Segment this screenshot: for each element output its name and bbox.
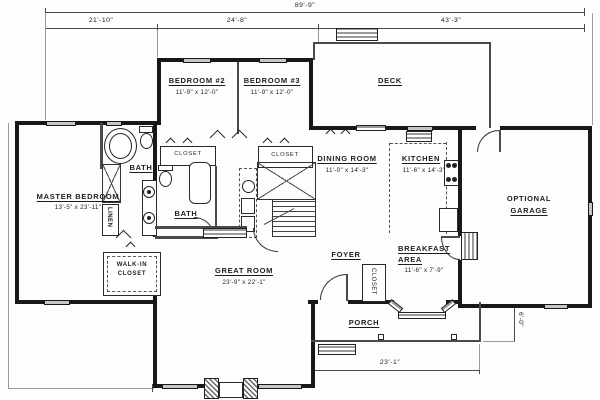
bathtub-inner-line [109, 133, 132, 159]
deck-steps [336, 28, 378, 41]
dim-tick [584, 24, 585, 32]
wall-master-bath [100, 123, 103, 169]
bay-window-center [398, 312, 446, 319]
window [106, 121, 122, 126]
door-swing-bedroom2 [210, 130, 226, 146]
master-bath-label: BATH [129, 163, 152, 172]
window [259, 58, 287, 63]
porch-label: PORCH [349, 318, 380, 327]
door-leaf [499, 130, 501, 152]
wall-bedrooms-left [157, 58, 161, 125]
wall-bedrooms-right [309, 58, 313, 130]
kitchen-size: 11'-6" x 14'-3" [403, 167, 446, 174]
walk-in-closet-label2: CLOSET [118, 271, 147, 277]
french-door-deck [326, 129, 336, 139]
extension-line [157, 30, 158, 57]
counter-edge [389, 143, 390, 233]
extension-line-left [8, 123, 9, 388]
refrigerator-fixture [439, 208, 458, 232]
dim-line-porch-depth [514, 306, 515, 342]
extension-line [479, 344, 480, 370]
foyer-closet-label: CLOSET [370, 268, 376, 295]
wall-master-bottom [15, 300, 157, 304]
burner [452, 163, 457, 168]
floor-plan-canvas: 89'-9" 21'-10" 24'-8" 43'-3" 23'-1" 6'-0… [0, 0, 600, 400]
garage-label: GARAGE [510, 206, 547, 215]
wall-master-left [15, 121, 19, 304]
bedroom3-label: BEDROOM #3 [244, 76, 301, 85]
stairs-treads [272, 199, 316, 237]
wall-bedrooms-top [157, 58, 313, 62]
porch-edge [311, 340, 481, 342]
extension-line [592, 13, 593, 125]
dim-overall-label: 89'-9" [295, 2, 315, 9]
extension-line [483, 341, 515, 342]
toilet-bowl-fixture [159, 171, 172, 187]
door-arc-front-entry [320, 274, 347, 300]
burner [452, 177, 457, 182]
bedroom2-label: BEDROOM #2 [169, 76, 226, 85]
dining-room-size: 11'-0" x 14'-3" [326, 167, 369, 174]
wall-bedroom-divider [237, 62, 239, 134]
toilet-bowl-fixture [242, 180, 255, 193]
wall-master-top [15, 121, 157, 125]
kitchen-label: KITCHEN [402, 154, 440, 163]
entry-column [243, 378, 258, 399]
master-bedroom-label: MASTER BEDROOM [37, 192, 120, 201]
garage-steps [461, 232, 478, 260]
door-arc-hall [253, 228, 278, 252]
foyer-label: FOYER [331, 250, 360, 259]
sink-drain [147, 190, 151, 194]
dim-tick [584, 8, 585, 16]
burner [446, 177, 451, 182]
fireplace-hearth [203, 228, 247, 238]
porch-post [451, 334, 457, 340]
deck-edge-top [313, 42, 490, 44]
toilet-bowl-fixture [140, 133, 153, 149]
laundry-unit [241, 198, 255, 214]
bay-window-left [388, 299, 404, 313]
deck-label: DECK [378, 76, 402, 85]
toilet-tank-fixture [139, 126, 153, 133]
wall-garage-left-upper [458, 126, 462, 236]
extension-line-bottom-left [8, 388, 154, 389]
dim-line-overall [45, 12, 585, 13]
closet-bedroom3-label: CLOSET [271, 152, 298, 158]
closet-bedroom2-label: CLOSET [174, 151, 201, 157]
stairs-upper-xbox [257, 162, 316, 200]
master-bedroom-size: 13'-5" x 23'-11" [55, 204, 102, 211]
window [46, 121, 76, 126]
door-swing-bedroom3 [232, 130, 248, 146]
sliding-door-deck [356, 125, 386, 131]
window-garage [544, 304, 568, 309]
wall-garage-top-b [500, 126, 592, 130]
wall-greatroom-right [311, 300, 315, 388]
deck-edge-right [489, 42, 491, 128]
dim-left-label: 21'-10" [89, 17, 114, 24]
dim-middle-label: 24'-8" [227, 17, 247, 24]
bedroom2-size: 11'-9" x 12'-0" [176, 89, 219, 96]
dim-line-left-mid [45, 28, 318, 29]
door-leaf [346, 274, 348, 301]
dim-porch-depth-label: 6'-0" [517, 312, 524, 327]
garage-label-optional: OPTIONAL [507, 194, 551, 203]
extension-line [318, 30, 319, 42]
breakfast-size: 11'-6" x 7'-9" [405, 267, 444, 274]
french-door-deck [341, 129, 351, 139]
window-greatroom [258, 384, 302, 389]
great-room-size: 23'-9" x 22'-1" [222, 279, 265, 286]
entry-column [204, 378, 219, 399]
dim-right-label: 43'-3" [441, 17, 461, 24]
extension-line [45, 13, 46, 120]
window [44, 300, 70, 305]
dim-line-porch-width [312, 370, 480, 371]
porch-steps [318, 344, 356, 355]
window [183, 58, 211, 63]
breakfast-label1: BREAKFAST [398, 244, 450, 253]
wall-garage-right [588, 126, 592, 308]
door-swing-walkin [126, 242, 136, 252]
linen-label: LINEN [106, 207, 112, 228]
bedroom3-size: 11'-9" x 12'-0" [251, 89, 294, 96]
entry-stoop [219, 382, 243, 398]
window-garage [588, 202, 593, 216]
door-arc-garage-rear [477, 130, 499, 152]
porch-edge-right [479, 302, 481, 342]
bathtub-hall-fixture [189, 162, 211, 204]
bay-window-right [441, 299, 457, 313]
wall-main-north [313, 126, 462, 130]
great-room-label: GREAT ROOM [215, 266, 273, 275]
deck-edge-left [313, 42, 315, 60]
wall-foyer-south-a [308, 300, 318, 304]
dim-porch-width-label: 23'-1" [380, 359, 400, 366]
kitchen-sink-fixture [406, 131, 432, 142]
wall-greatroom-left [153, 300, 157, 388]
sink-drain [147, 216, 151, 220]
counter-edge [390, 143, 446, 144]
breakfast-label2: AREA [398, 255, 422, 264]
porch-post [378, 334, 384, 340]
walk-in-closet-label1: WALK-IN [117, 262, 148, 268]
window-greatroom [162, 384, 198, 389]
dining-room-label: DINING ROOM [317, 154, 376, 163]
burner [446, 163, 451, 168]
